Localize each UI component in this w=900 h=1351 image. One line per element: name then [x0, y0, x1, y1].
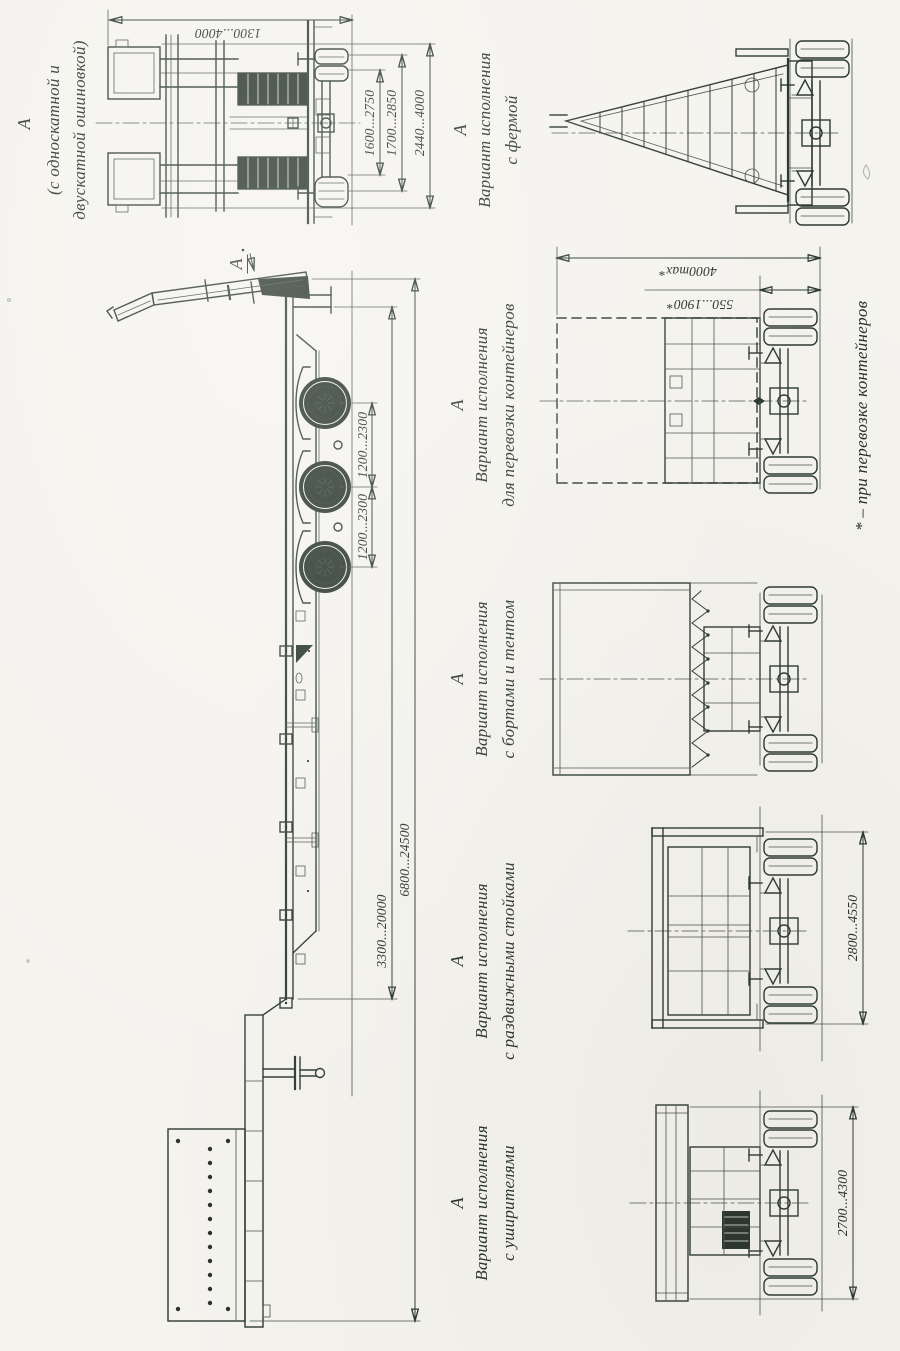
- dim-width-outer: 1700...2850: [384, 90, 400, 156]
- dim-container-height-max: 4000max*: [659, 263, 717, 279]
- containers-footnote: * – при перевозке контейнеров: [852, 301, 872, 531]
- scan-artifacts: [8, 165, 870, 962]
- variant-tent-title: Вариант исполнения: [472, 601, 492, 757]
- side-view-section-mark: А: [226, 255, 248, 274]
- rear-view-subtitle-2: двускатной ошиновкой): [70, 40, 90, 219]
- dim-ramp-height: 1300...4000: [195, 25, 261, 41]
- dim-axle-spacing-2: 1200...2300: [355, 412, 371, 478]
- variant-stakes-dim: 2800...4550: [845, 895, 861, 961]
- variant-stakes-title: Вариант исполнения: [472, 883, 492, 1039]
- variant-containers-mark: А: [447, 400, 468, 411]
- dim-platform-length: 3300...20000: [374, 894, 390, 967]
- variant-wideners-name: с уширителями: [499, 1145, 519, 1261]
- variant-art-wideners: [630, 1091, 858, 1315]
- variant-truss-name: с фермой: [502, 95, 522, 164]
- side-view-art: [107, 254, 420, 1327]
- rear-view-mark: А: [14, 119, 35, 130]
- dim-axle-spacing-1: 1200...2300: [355, 494, 371, 560]
- dim-overall-width: 2440...4000: [412, 90, 428, 156]
- dim-width-inner: 1600...2750: [362, 90, 378, 156]
- variant-containers-title: Вариант исполнения: [472, 327, 492, 483]
- variant-wideners-dim: 2700...4300: [835, 1170, 851, 1236]
- variant-tent-name: с бортами и тентом: [499, 600, 519, 759]
- scanned-drawing-page: А (с односкатной и двускатной ошиновкой)…: [0, 0, 900, 1351]
- variant-art-stakes: [628, 807, 868, 1061]
- variant-art-truss: [550, 39, 852, 225]
- dim-platform-height: 550...1900*: [667, 296, 733, 312]
- variant-art-containers: [540, 247, 820, 493]
- variant-stakes-name: с раздвижными стойками: [499, 862, 519, 1060]
- variant-wideners-mark: А: [447, 1198, 468, 1209]
- variant-truss-mark: А: [450, 125, 471, 136]
- variant-truss-title: Вариант исполнения: [475, 52, 495, 208]
- variant-art-tent: [540, 583, 822, 775]
- dim-overall-length: 6800...24500: [397, 823, 413, 896]
- rear-view-subtitle-1: (с односкатной и: [44, 65, 64, 195]
- variant-containers-name: для перевозки контейнеров: [499, 303, 519, 506]
- variant-tent-mark: А: [447, 674, 468, 685]
- drawing-landscape-stage: А (с односкатной и двускатной ошиновкой)…: [0, 0, 900, 1351]
- variant-wideners-title: Вариант исполнения: [472, 1125, 492, 1281]
- variant-stakes-mark: А: [447, 956, 468, 967]
